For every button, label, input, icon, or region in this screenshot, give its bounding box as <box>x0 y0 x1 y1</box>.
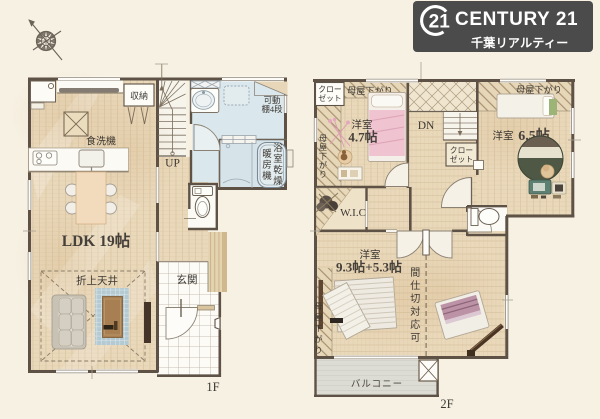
svg-text:母: 母 <box>319 134 327 143</box>
svg-text:応: 応 <box>410 318 420 331</box>
svg-text:房: 房 <box>262 159 272 171</box>
svg-text:UP: UP <box>165 158 180 170</box>
svg-text:母屋下がり: 母屋下がり <box>516 84 562 95</box>
svg-text:屋: 屋 <box>319 143 327 152</box>
svg-text:間: 間 <box>410 267 420 279</box>
svg-text:4.7帖: 4.7帖 <box>348 130 377 145</box>
svg-text:クロー: クロー <box>450 146 473 155</box>
svg-text:暖: 暖 <box>262 148 272 160</box>
svg-text:ゼット: ゼット <box>450 154 473 164</box>
svg-text:棚4段: 棚4段 <box>262 104 284 114</box>
svg-text:DN: DN <box>418 120 435 132</box>
svg-text:LDK 19帖: LDK 19帖 <box>62 231 131 250</box>
svg-text:玄関: 玄関 <box>177 273 198 286</box>
svg-text:屋: 屋 <box>314 313 322 322</box>
svg-text:クロー: クロー <box>318 85 341 94</box>
svg-text:可: 可 <box>410 333 420 344</box>
svg-text:り: り <box>314 346 322 355</box>
svg-text:下: 下 <box>314 324 322 333</box>
svg-text:が: が <box>319 160 327 170</box>
svg-text:切: 切 <box>410 293 420 305</box>
svg-text:収納: 収納 <box>130 90 148 101</box>
svg-text:2F: 2F <box>440 397 453 411</box>
svg-text:浴: 浴 <box>273 143 283 154</box>
svg-text:洋室: 洋室 <box>493 129 514 142</box>
svg-text:燥: 燥 <box>273 176 283 187</box>
svg-text:9.3帖+5.3帖: 9.3帖+5.3帖 <box>336 260 402 275</box>
svg-text:W.I.C: W.I.C <box>340 207 366 219</box>
svg-text:母: 母 <box>314 302 322 311</box>
svg-text:食洗機: 食洗機 <box>86 135 116 148</box>
svg-text:可動: 可動 <box>264 96 281 105</box>
svg-text:ゼット: ゼット <box>318 93 341 103</box>
svg-text:機: 機 <box>262 170 272 182</box>
svg-text:下: 下 <box>319 152 327 161</box>
svg-text:対: 対 <box>410 305 420 318</box>
svg-text:り: り <box>319 170 327 179</box>
svg-text:バルコニー: バルコニー <box>351 379 403 390</box>
svg-text:が: が <box>314 334 322 344</box>
svg-text:21: 21 <box>429 12 451 33</box>
svg-text:1F: 1F <box>206 380 219 394</box>
svg-text:仕: 仕 <box>410 279 420 292</box>
svg-text:室: 室 <box>273 153 283 165</box>
svg-text:乾: 乾 <box>273 164 283 176</box>
svg-text:折上天井: 折上天井 <box>76 274 118 287</box>
